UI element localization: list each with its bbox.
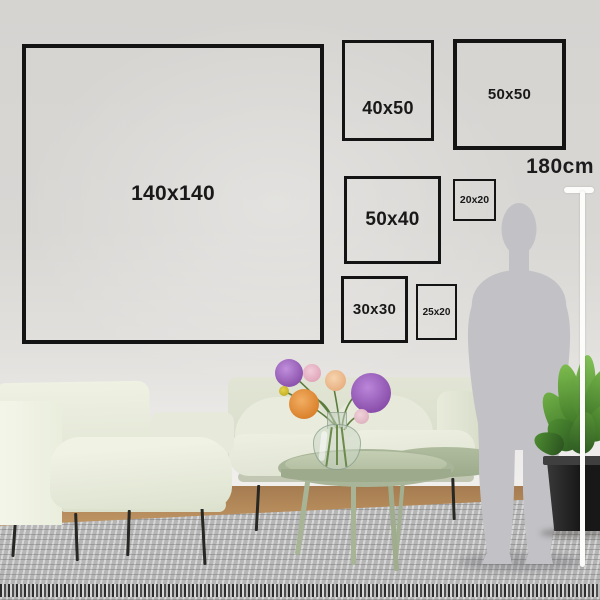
frame-label: 40x50 (362, 98, 414, 119)
flower-orange (289, 389, 319, 419)
flower-purple (275, 359, 303, 387)
flower-pink (303, 364, 321, 382)
frame-label: 50x40 (365, 209, 419, 231)
armchair-seat-cushion (50, 437, 232, 509)
height-marker-line (580, 191, 585, 567)
plant-pot-rim (543, 456, 600, 465)
front-table-leg (351, 483, 356, 565)
flower-peach (325, 370, 346, 391)
frame-25x20: 25x20 (416, 284, 457, 340)
frame-40x50: 40x50 (342, 40, 434, 141)
plant-pot (545, 459, 600, 531)
frame-50x50: 50x50 (453, 39, 566, 150)
flower-yellow (279, 386, 289, 396)
frame-50x40: 50x40 (344, 176, 441, 264)
front-table-edge (281, 469, 451, 482)
frame-label: 140x140 (131, 182, 215, 206)
frame-label: 50x50 (488, 86, 531, 103)
height-marker-text: 180cm (508, 155, 594, 179)
frame-label: 30x30 (353, 301, 396, 318)
rug-fringe (0, 584, 600, 597)
frame-140x140: 140x140 (22, 44, 324, 344)
flower-purple (351, 373, 391, 413)
flower-bud (354, 409, 369, 424)
size-guide-infographic: 140x140 40x50 50x50 50x40 20x20 30x30 25… (0, 0, 600, 600)
frame-30x30: 30x30 (341, 276, 408, 343)
frame-label: 25x20 (423, 307, 451, 318)
height-marker-top-bar (564, 187, 594, 193)
